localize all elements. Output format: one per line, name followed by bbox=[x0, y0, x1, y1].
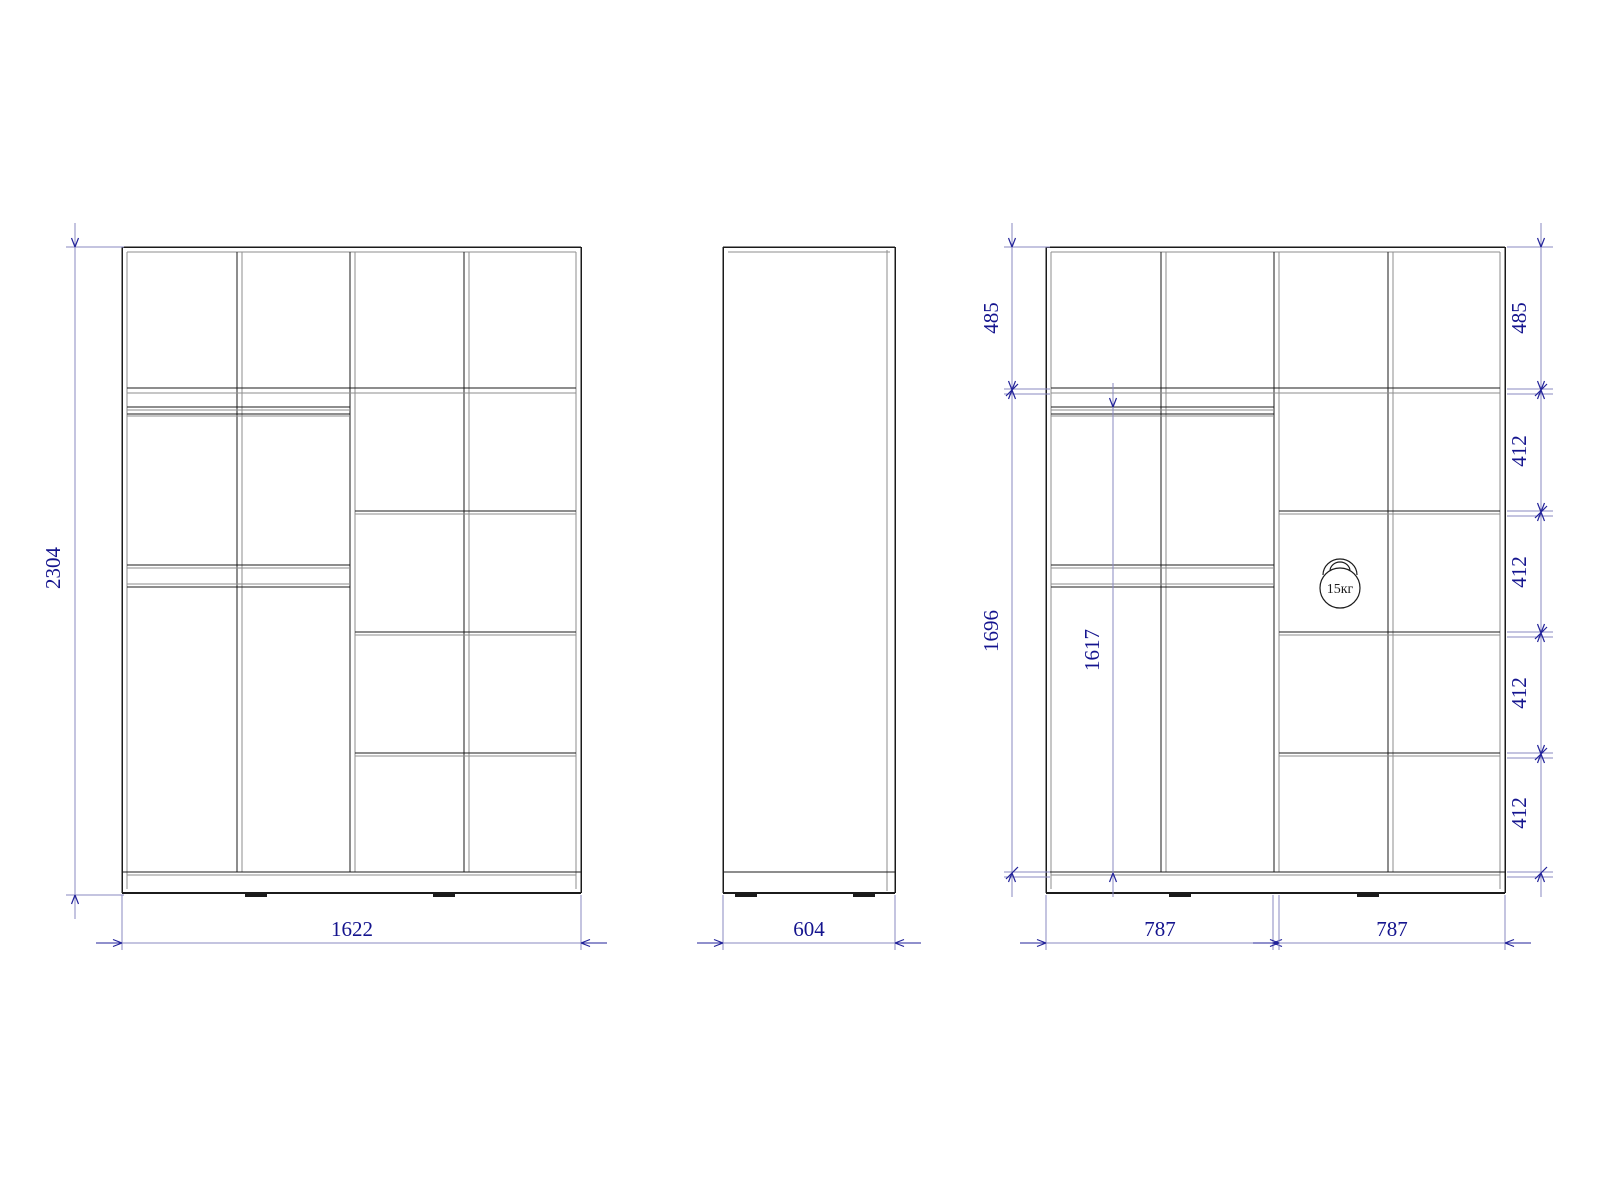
horizontal-dimensions: 1622604787787 bbox=[96, 895, 1531, 950]
dim-label-left-inner-chain-0: 485 bbox=[979, 302, 1003, 334]
side-view bbox=[723, 247, 895, 895]
dim-label-width-total: 1622 bbox=[331, 917, 373, 941]
vertical-dimensions: 230448516961617485412412412412 bbox=[41, 223, 1553, 919]
dim-label-width-left-module: 787 bbox=[1144, 917, 1176, 941]
drawing-canvas: 1622604787787230448516961617485412412412… bbox=[0, 0, 1600, 1200]
dim-label-height-total-0: 2304 bbox=[41, 547, 65, 590]
dim-label-rod-height-0: 1617 bbox=[1080, 629, 1104, 671]
max-load-label: 15кг bbox=[1327, 582, 1354, 597]
dim-label-right-inner-chain-4: 412 bbox=[1507, 797, 1531, 829]
dim-label-right-inner-chain-1: 412 bbox=[1507, 435, 1531, 467]
dim-label-left-inner-chain-1: 1696 bbox=[979, 610, 1003, 652]
dim-label-right-inner-chain-2: 412 bbox=[1507, 556, 1531, 588]
dim-label-width-right-module: 787 bbox=[1376, 917, 1408, 941]
front-view bbox=[122, 247, 581, 895]
internal-view bbox=[1046, 247, 1505, 895]
dim-label-depth: 604 bbox=[793, 917, 825, 941]
dim-label-right-inner-chain-3: 412 bbox=[1507, 677, 1531, 709]
technical-drawing: 1622604787787230448516961617485412412412… bbox=[0, 0, 1600, 1200]
kettlebell-icon: 15кг bbox=[1320, 559, 1360, 608]
dim-label-right-inner-chain-0: 485 bbox=[1507, 302, 1531, 334]
